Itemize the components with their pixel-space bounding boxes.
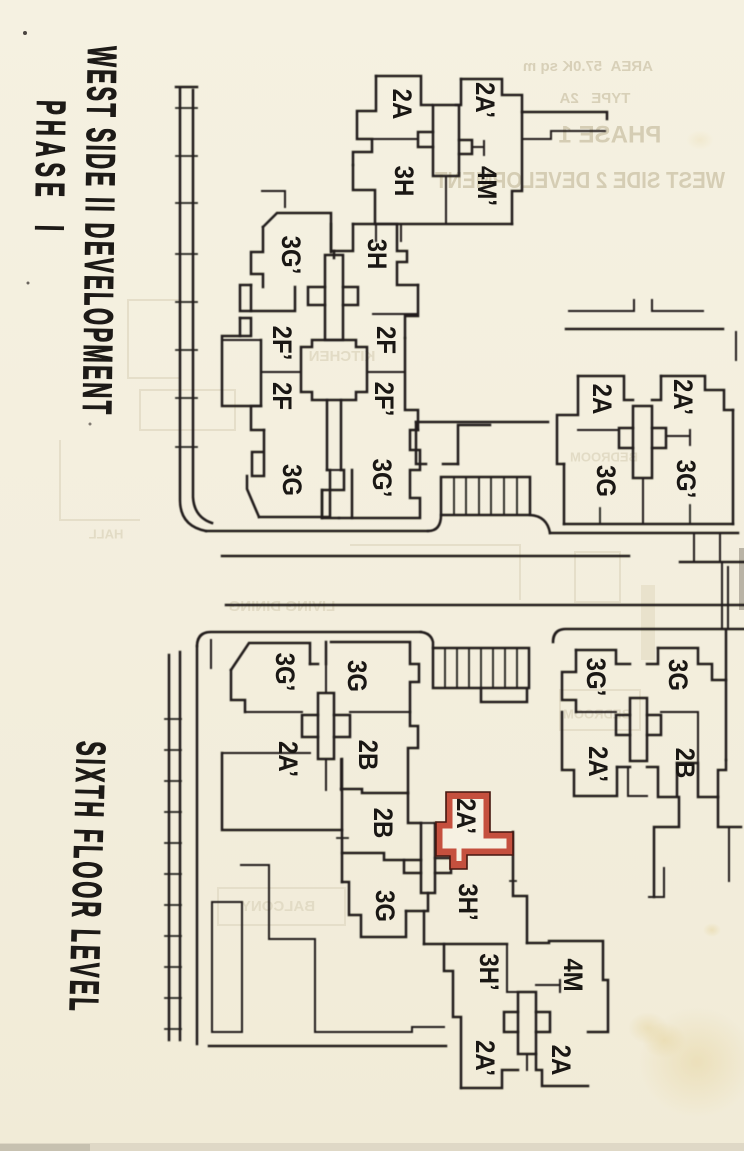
svg-text:2B: 2B (368, 808, 398, 839)
svg-text:BEDROOM: BEDROOM (570, 449, 638, 464)
svg-text:3H’: 3H’ (474, 953, 504, 990)
svg-text:AREA 57.0K sq m: AREA 57.0K sq m (523, 58, 653, 75)
svg-text:2A’: 2A’ (451, 798, 481, 834)
svg-text:3G: 3G (663, 659, 693, 691)
svg-text:3G’: 3G’ (671, 460, 701, 499)
svg-text:2B: 2B (670, 748, 700, 779)
svg-text:3H: 3H (389, 166, 419, 197)
svg-text:3G: 3G (277, 464, 307, 496)
svg-text:3G: 3G (342, 660, 372, 692)
svg-text:SIXTH FLOOR LEVEL: SIXTH FLOOR LEVEL (61, 740, 115, 1011)
svg-text:3G: 3G (370, 890, 400, 922)
svg-text:KITCHEN: KITCHEN (309, 348, 376, 365)
svg-text:HALL: HALL (89, 526, 124, 541)
svg-text:3H’: 3H’ (453, 883, 483, 920)
svg-text:3G: 3G (591, 465, 621, 497)
svg-text:2F: 2F (267, 382, 297, 410)
svg-text:2A: 2A (587, 384, 617, 415)
svg-text:2A’: 2A’ (273, 741, 303, 777)
svg-text:2F’: 2F’ (369, 382, 399, 417)
svg-text:3G’: 3G’ (276, 236, 306, 275)
svg-text:LIVING DINING: LIVING DINING (229, 598, 336, 615)
svg-text:2A’: 2A’ (668, 379, 698, 415)
svg-text:PHASE 1: PHASE 1 (559, 121, 662, 148)
svg-text:3G’: 3G’ (367, 459, 397, 498)
svg-text:2F’: 2F’ (267, 326, 297, 361)
svg-text:2A’: 2A’ (470, 82, 500, 118)
svg-text:2A’: 2A’ (583, 746, 613, 782)
svg-text:4M’: 4M’ (472, 166, 502, 206)
svg-text:2A: 2A (546, 1045, 576, 1076)
svg-text:BALCONY: BALCONY (241, 898, 315, 915)
svg-text:3H: 3H (362, 239, 392, 270)
svg-text:2F: 2F (371, 326, 401, 354)
svg-text:4M: 4M (558, 958, 588, 991)
svg-text:3G’: 3G’ (581, 658, 611, 697)
svg-text:TYPE 2A: TYPE 2A (559, 90, 630, 107)
svg-text:2A: 2A (387, 89, 417, 120)
svg-text:2B: 2B (353, 740, 383, 771)
svg-text:3G’: 3G’ (270, 653, 300, 692)
svg-text:2A’: 2A’ (470, 1040, 500, 1076)
